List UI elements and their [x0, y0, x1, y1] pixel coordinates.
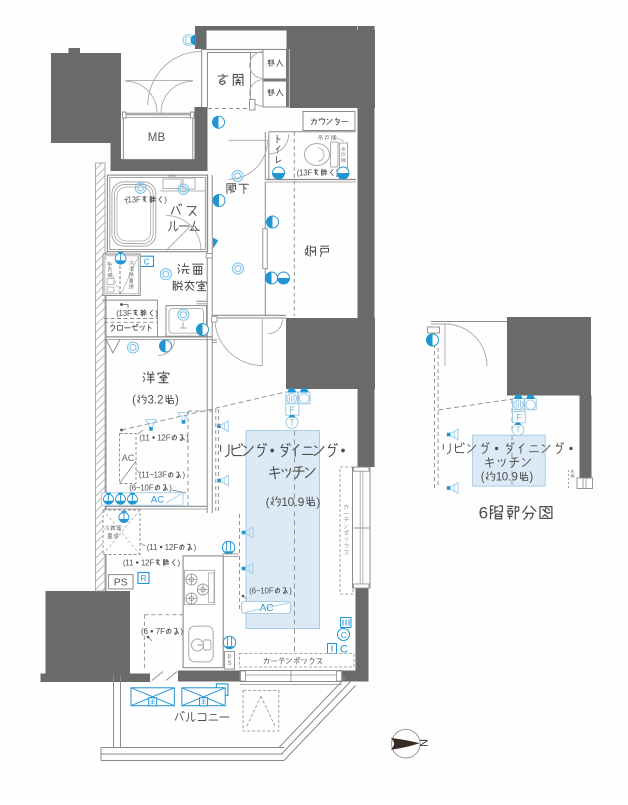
svg-text:): ) — [180, 627, 183, 636]
svg-text:): ) — [182, 471, 185, 480]
svg-text:T: T — [289, 418, 294, 428]
svg-text:F: F — [289, 405, 295, 416]
svg-text:): ) — [316, 495, 320, 509]
svg-text:): ) — [529, 472, 533, 484]
svg-text:0: 0 — [502, 472, 508, 484]
svg-text:F: F — [269, 586, 274, 595]
svg-text:(: ( — [481, 472, 485, 484]
svg-text:F: F — [516, 413, 522, 424]
svg-text:): ) — [289, 586, 292, 595]
svg-text:): ) — [169, 483, 172, 492]
svg-text:): ) — [194, 543, 197, 552]
svg-text:C: C — [128, 453, 135, 463]
svg-text:1: 1 — [146, 433, 150, 442]
svg-text:): ) — [177, 558, 180, 567]
svg-text:F: F — [149, 483, 154, 492]
svg-text:P: P — [114, 577, 121, 589]
svg-text:F: F — [127, 309, 132, 318]
svg-text:1: 1 — [153, 543, 157, 552]
svg-text:): ) — [155, 309, 158, 318]
svg-text:(: ( — [266, 495, 270, 509]
svg-text:9: 9 — [511, 472, 517, 484]
svg-text:F: F — [160, 627, 165, 636]
svg-text:): ) — [164, 195, 167, 204]
svg-text:F: F — [136, 195, 141, 204]
svg-text:T: T — [516, 426, 521, 435]
svg-text:F: F — [162, 471, 167, 480]
svg-text:R: R — [141, 574, 147, 583]
svg-text:F: F — [149, 558, 154, 567]
svg-text:6: 6 — [144, 627, 148, 636]
svg-text:): ) — [175, 395, 179, 407]
svg-text:B: B — [157, 132, 165, 144]
svg-text:C: C — [341, 630, 347, 640]
svg-text:C: C — [266, 603, 273, 614]
svg-text:C: C — [144, 257, 150, 266]
svg-text:S: S — [121, 577, 128, 589]
svg-text:N: N — [417, 739, 429, 747]
svg-text:2: 2 — [157, 395, 163, 407]
svg-text:S: S — [227, 661, 231, 667]
svg-text:1: 1 — [129, 558, 133, 567]
svg-text:F: F — [173, 543, 178, 552]
svg-text:M: M — [148, 132, 158, 144]
svg-text:9: 9 — [298, 495, 305, 509]
svg-text:F: F — [166, 433, 171, 442]
svg-text:C: C — [157, 494, 164, 505]
svg-text:F: F — [308, 168, 313, 177]
svg-text:6: 6 — [479, 504, 488, 523]
svg-text:(: ( — [132, 395, 136, 407]
